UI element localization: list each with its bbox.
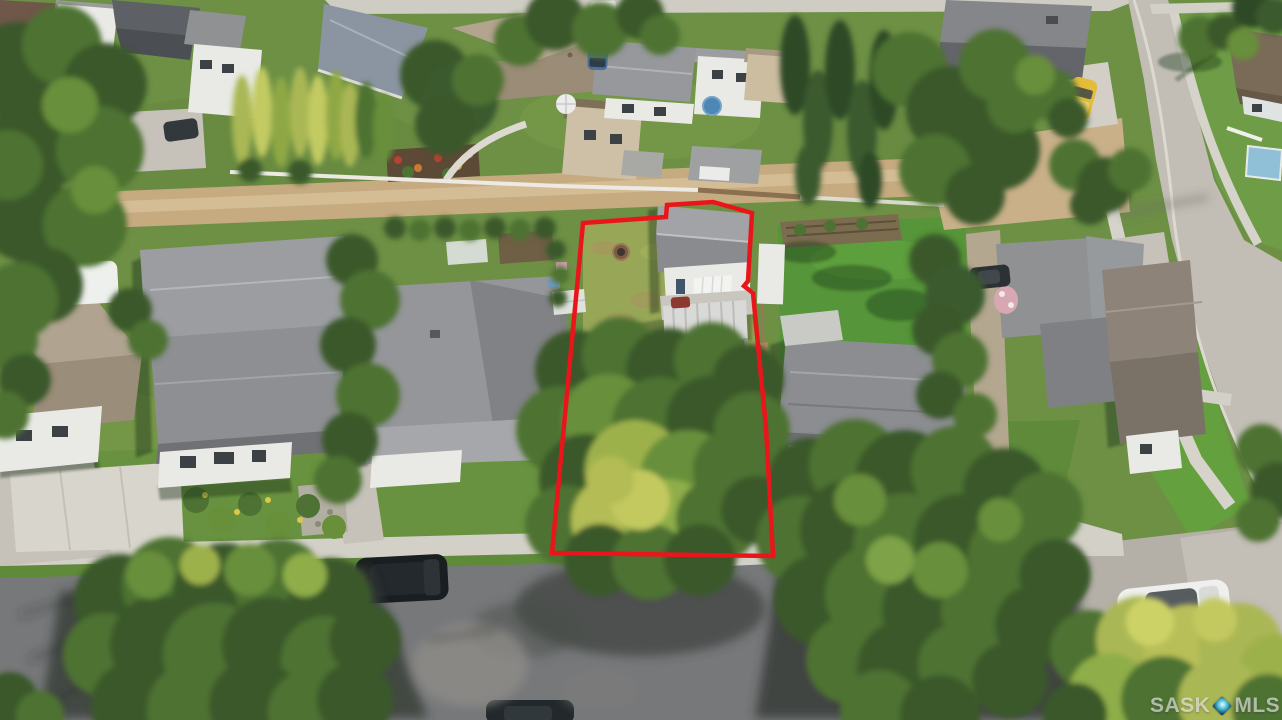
aerial-listing-photo: SASK MLS ® [0,0,1282,720]
watermark: SASK MLS ® [1150,694,1282,718]
driveway-left2 [10,462,184,552]
sidewalk-ne [1150,2,1242,14]
watermark-text-left: SASK [1150,694,1210,718]
pool [1246,146,1282,180]
dark-car-bottom [486,700,574,720]
greenhouse [446,239,488,265]
watermark-text-right: MLS [1234,694,1280,718]
fire-pit [613,244,629,260]
pink-patio-set [994,286,1018,314]
red-car [671,296,691,308]
patio-roof [780,310,843,346]
front-door [676,279,685,294]
neighbour-garage-east [757,244,785,305]
house-mid-2 [140,236,350,488]
mls-diamond-icon [1212,696,1232,716]
trampoline [703,97,721,115]
photo-canvas [0,0,1282,720]
